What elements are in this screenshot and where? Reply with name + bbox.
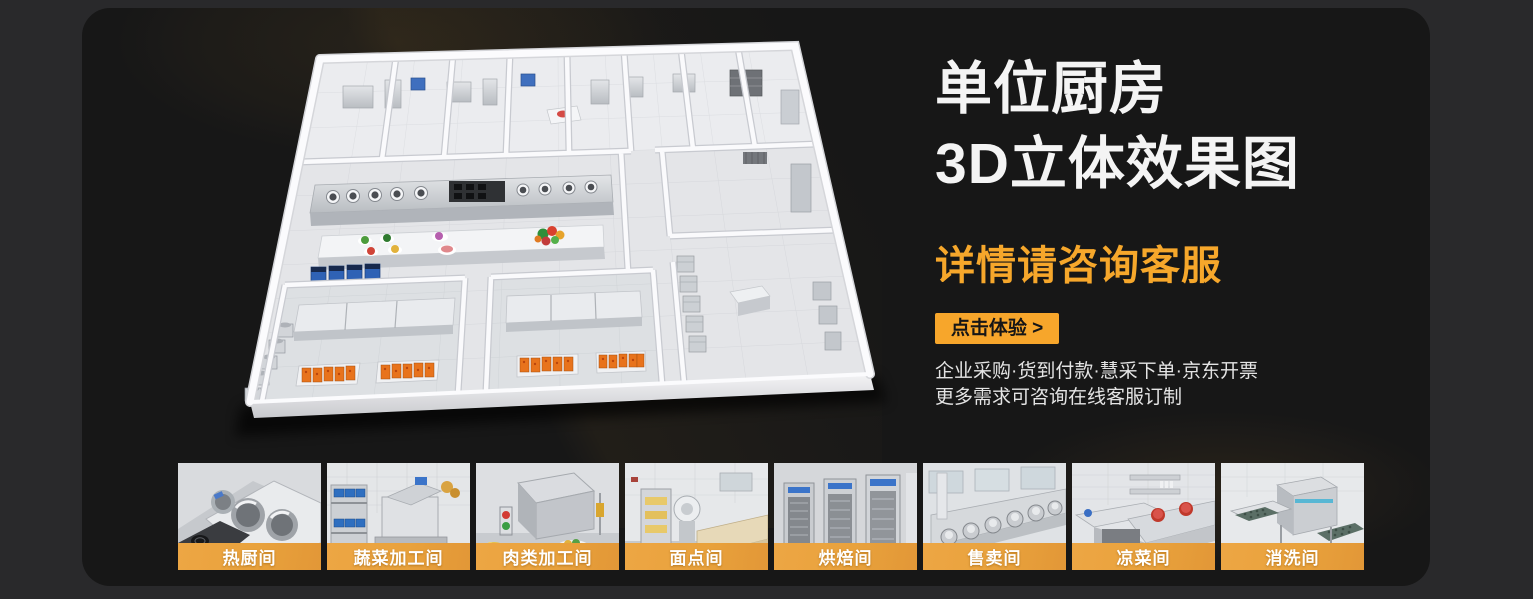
hero-text-block: 单位厨房3D立体效果图 详情请咨询客服 点击体验 > 企业采购·货到付款·慧采下… [935, 52, 1405, 411]
gallery-item-pastry[interactable]: 面点间 [625, 463, 768, 570]
note-line-1: 企业采购·货到付款·慧采下单·京东开票 [935, 359, 1405, 385]
gallery-item-label: 烘焙间 [774, 543, 917, 570]
gallery-item-label: 热厨间 [178, 543, 321, 570]
gallery-item-cold-dish[interactable]: 凉菜间 [1072, 463, 1215, 570]
gallery-item-label: 凉菜间 [1072, 543, 1215, 570]
hero-notes: 企业采购·货到付款·慧采下单·京东开票 更多需求可咨询在线客服订制 [935, 359, 1405, 411]
gallery-item-label: 面点间 [625, 543, 768, 570]
title-line-2: 3D立体效果图 [935, 132, 1300, 196]
gallery-item-meat-processing[interactable]: 肉类加工间 [476, 463, 619, 570]
gallery-item-serving[interactable]: 售卖间 [923, 463, 1066, 570]
title-line-1: 单位厨房 [935, 57, 1167, 121]
gallery-item-label: 消洗间 [1221, 543, 1364, 570]
gallery-item-washing[interactable]: 消洗间 [1221, 463, 1364, 570]
banner-panel: 单位厨房3D立体效果图 详情请咨询客服 点击体验 > 企业采购·货到付款·慧采下… [82, 8, 1430, 586]
page-title: 单位厨房3D立体效果图 [935, 52, 1405, 202]
gallery-item-label: 肉类加工间 [476, 543, 619, 570]
gallery-item-vegetable-processing[interactable]: 蔬菜加工间 [327, 463, 470, 570]
kitchen-floorplan-image [225, 24, 905, 454]
gallery-item-baking[interactable]: 烘焙间 [774, 463, 917, 570]
hero-subtitle: 详情请咨询客服 [935, 233, 1405, 291]
room-gallery: 热厨间 蔬菜加工间 [178, 463, 1364, 570]
note-line-2: 更多需求可咨询在线客服订制 [935, 385, 1405, 411]
gallery-item-label: 蔬菜加工间 [327, 543, 470, 570]
cta-button[interactable]: 点击体验 > [935, 313, 1059, 344]
gallery-item-label: 售卖间 [923, 543, 1066, 570]
gallery-item-hot-kitchen[interactable]: 热厨间 [178, 463, 321, 570]
